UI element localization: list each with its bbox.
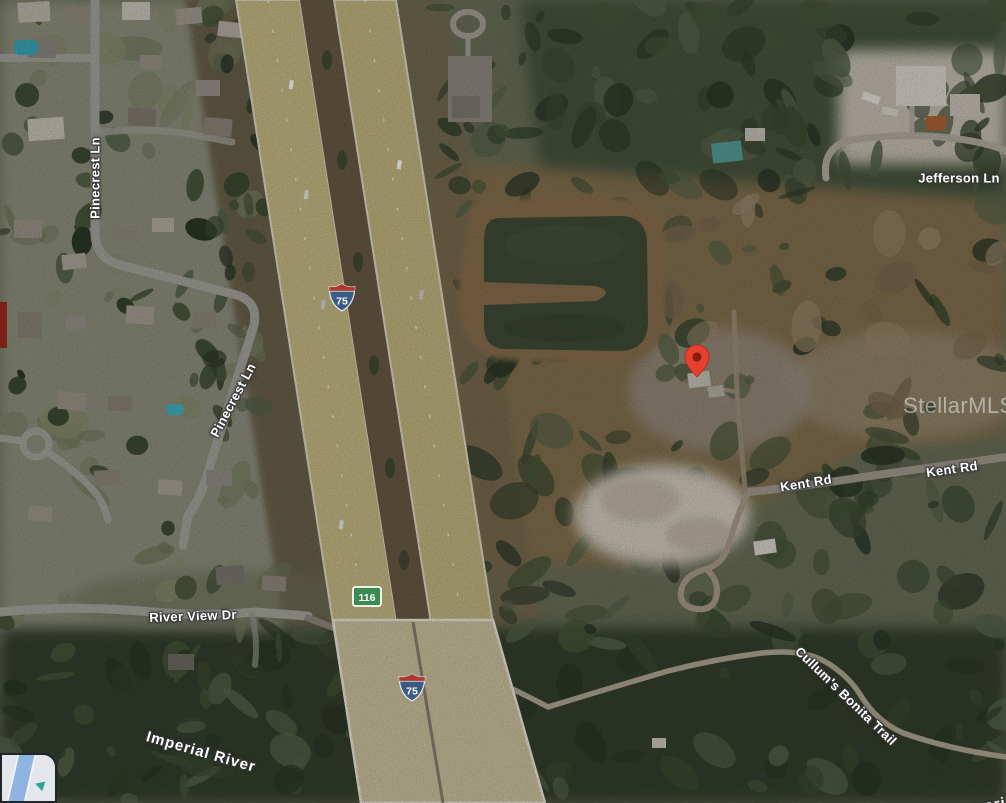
image-grain-overlay bbox=[0, 0, 1006, 803]
satellite-terrain-artwork bbox=[0, 0, 1006, 803]
satellite-map-canvas[interactable]: Pinecrest LnJefferson LnPinecrest LnKent… bbox=[0, 0, 1006, 803]
inset-road-stripe bbox=[3, 753, 38, 803]
property-location-pin[interactable] bbox=[684, 344, 710, 383]
map-inset-thumbnail[interactable] bbox=[0, 753, 57, 803]
inset-poi-arrow-icon bbox=[34, 779, 46, 791]
